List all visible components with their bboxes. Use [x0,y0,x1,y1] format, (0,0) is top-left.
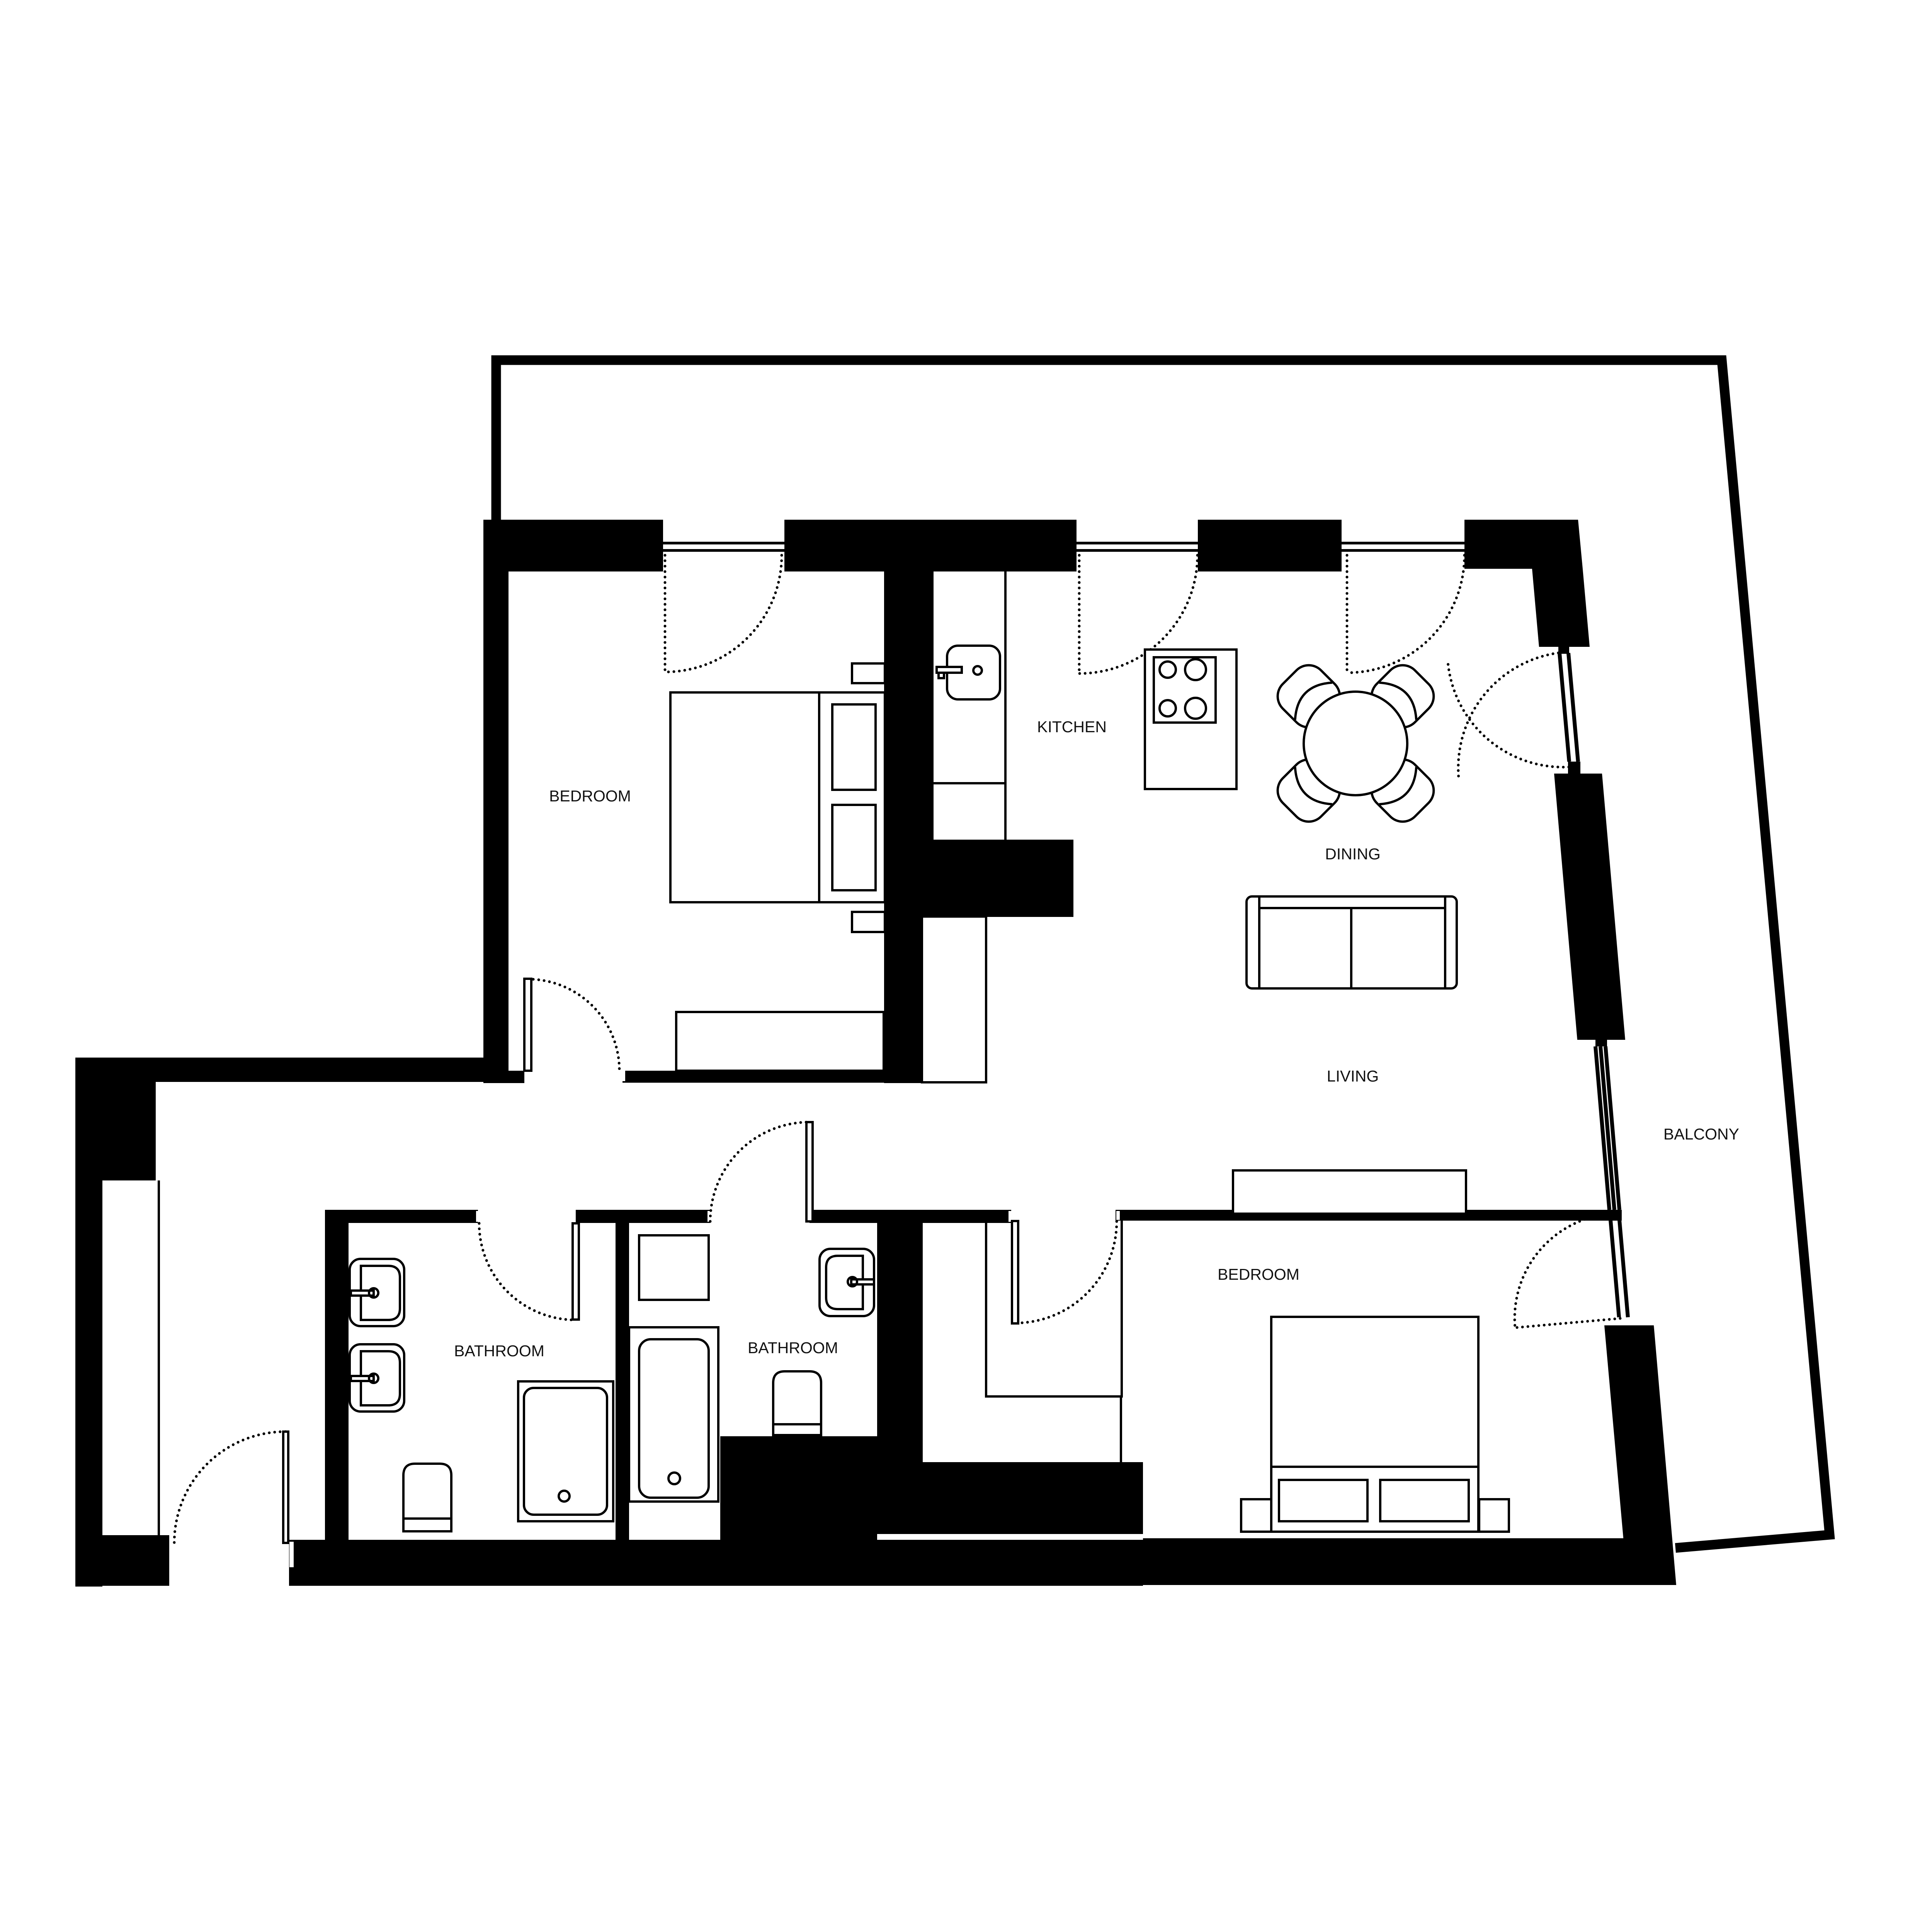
svg-text:BALCONY: BALCONY [1663,1125,1739,1143]
svg-text:DINING: DINING [1325,845,1381,863]
svg-text:BEDROOM: BEDROOM [549,787,631,805]
svg-text:BATHROOM: BATHROOM [454,1342,544,1360]
svg-text:LIVING: LIVING [1327,1067,1379,1085]
svg-text:BATHROOM: BATHROOM [748,1339,838,1357]
svg-text:BEDROOM: BEDROOM [1218,1265,1299,1283]
svg-text:KITCHEN: KITCHEN [1037,718,1107,736]
